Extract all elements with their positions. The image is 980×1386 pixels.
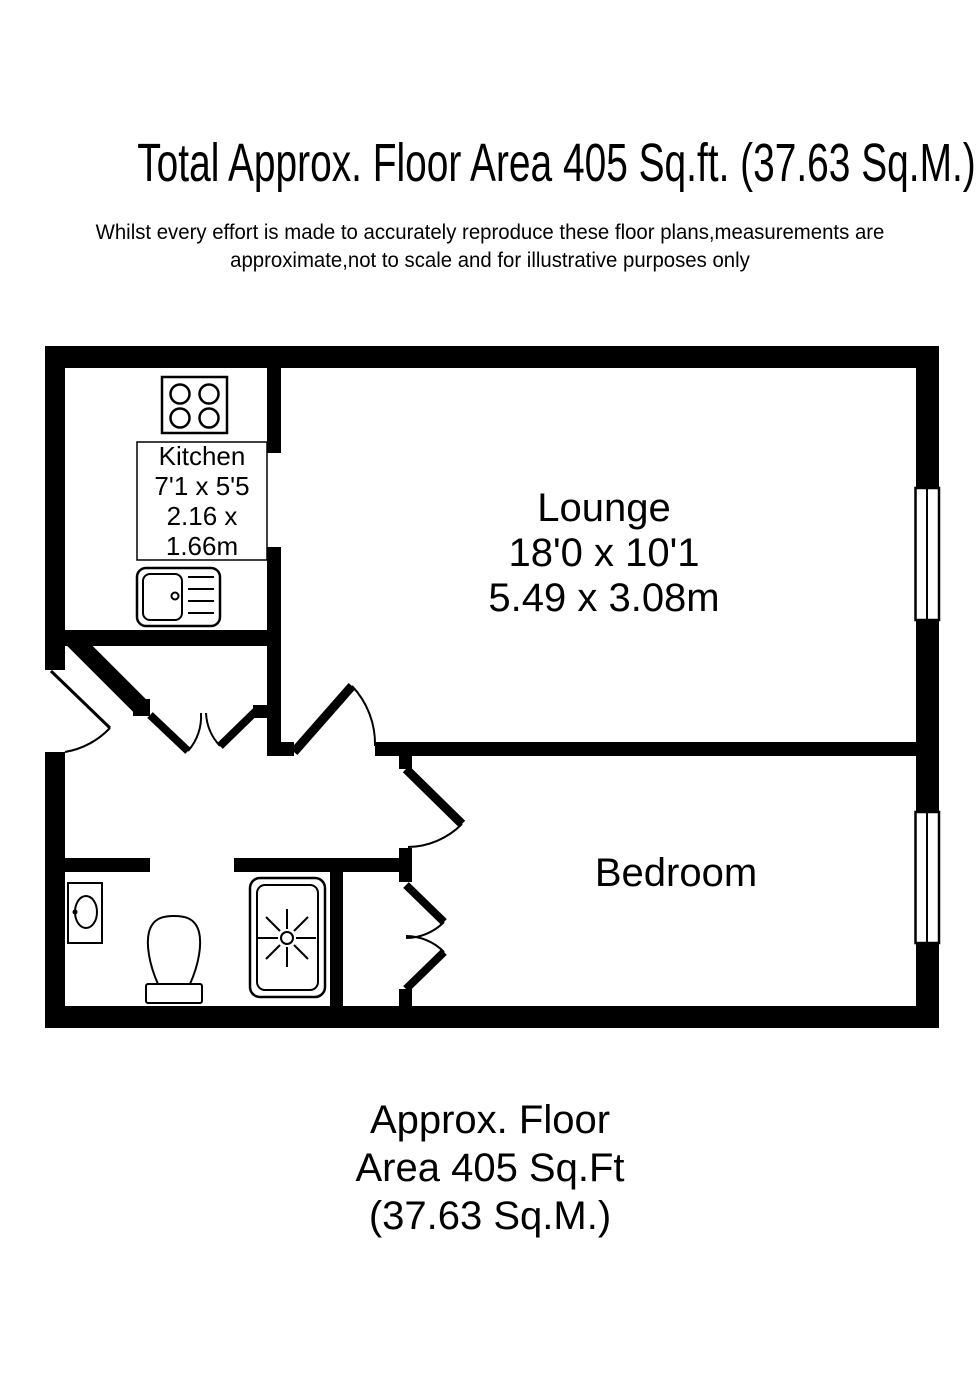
lounge-name: Lounge bbox=[404, 486, 804, 531]
kitchen-bottom-wall bbox=[65, 630, 281, 646]
wall-top bbox=[45, 346, 939, 368]
hall-door-leaf-right bbox=[220, 710, 257, 746]
hall-door-arc-right bbox=[206, 713, 220, 746]
lounge-door-hinge-nub bbox=[267, 742, 294, 756]
wardrobe-door-leaf-bottom bbox=[406, 952, 444, 989]
wall-left-upper bbox=[45, 346, 65, 670]
wardrobe-door-leaf-top bbox=[406, 885, 444, 922]
lounge-dims-imperial: 18'0 x 10'1 bbox=[404, 531, 804, 576]
kitchen-wall-upper bbox=[267, 368, 281, 453]
lounge-dims-metric: 5.49 x 3.08m bbox=[404, 576, 804, 621]
bedroom-label: Bedroom bbox=[476, 851, 876, 896]
bathroom-side-wall bbox=[330, 872, 343, 1006]
kitchen-dims-metric: 2.16 x 1.66m bbox=[137, 501, 267, 561]
bedroom-door-nub-bottom bbox=[399, 989, 412, 1006]
lounge-label: Lounge 18'0 x 10'1 5.49 x 3.08m bbox=[404, 486, 804, 621]
footer-line-3: (37.63 Sq.M.) bbox=[0, 1192, 980, 1240]
shower-drain-star bbox=[258, 909, 316, 967]
hall-chamfer-wall bbox=[72, 638, 140, 706]
wash-basin-icon bbox=[68, 883, 102, 943]
kitchen-dims-imperial: 7'1 x 5'5 bbox=[137, 471, 267, 501]
lounge-door-arc bbox=[352, 686, 375, 746]
bedroom-name: Bedroom bbox=[476, 851, 876, 896]
bathroom-fixtures bbox=[68, 878, 325, 1003]
kitchen-label: Kitchen 7'1 x 5'5 2.16 x 1.66m bbox=[137, 442, 267, 560]
hall-double-doors bbox=[150, 710, 257, 751]
hall-door-arc-left bbox=[188, 713, 201, 751]
entrance-door-arc bbox=[65, 728, 110, 752]
toilet-icon bbox=[146, 916, 202, 1003]
wall-right-b bbox=[916, 620, 939, 812]
lounge-bedroom-divider-wall bbox=[375, 742, 916, 756]
bedroom-window bbox=[916, 812, 940, 943]
bedroom-door-leaf bbox=[406, 769, 462, 824]
bedroom-door bbox=[406, 769, 462, 847]
sink-icon bbox=[137, 568, 220, 626]
wardrobe-double-doors bbox=[406, 885, 444, 989]
kitchen-name: Kitchen bbox=[137, 441, 267, 471]
hall-chamfer-cap bbox=[133, 699, 150, 716]
footer-line-2: Area 405 Sq.Ft bbox=[0, 1144, 980, 1192]
lounge-door bbox=[294, 686, 375, 752]
hob-icon bbox=[162, 377, 227, 433]
footer-area-summary: Approx. Floor Area 405 Sq.Ft (37.63 Sq.M… bbox=[0, 1096, 980, 1240]
entrance-door bbox=[51, 671, 110, 752]
hall-door-leaf-left bbox=[150, 715, 188, 751]
bathroom-wall-right bbox=[234, 858, 406, 872]
footer-line-1: Approx. Floor bbox=[0, 1096, 980, 1144]
wall-bottom bbox=[45, 1006, 939, 1028]
shower-icon bbox=[250, 878, 325, 997]
wall-left-lower bbox=[45, 752, 65, 1028]
bedroom-door-arc bbox=[408, 824, 462, 847]
lounge-window bbox=[916, 488, 940, 620]
wall-right-a bbox=[916, 346, 939, 488]
lounge-door-leaf bbox=[294, 686, 352, 752]
bathroom-wall-left bbox=[65, 858, 150, 872]
wall-right-c bbox=[916, 943, 939, 1028]
